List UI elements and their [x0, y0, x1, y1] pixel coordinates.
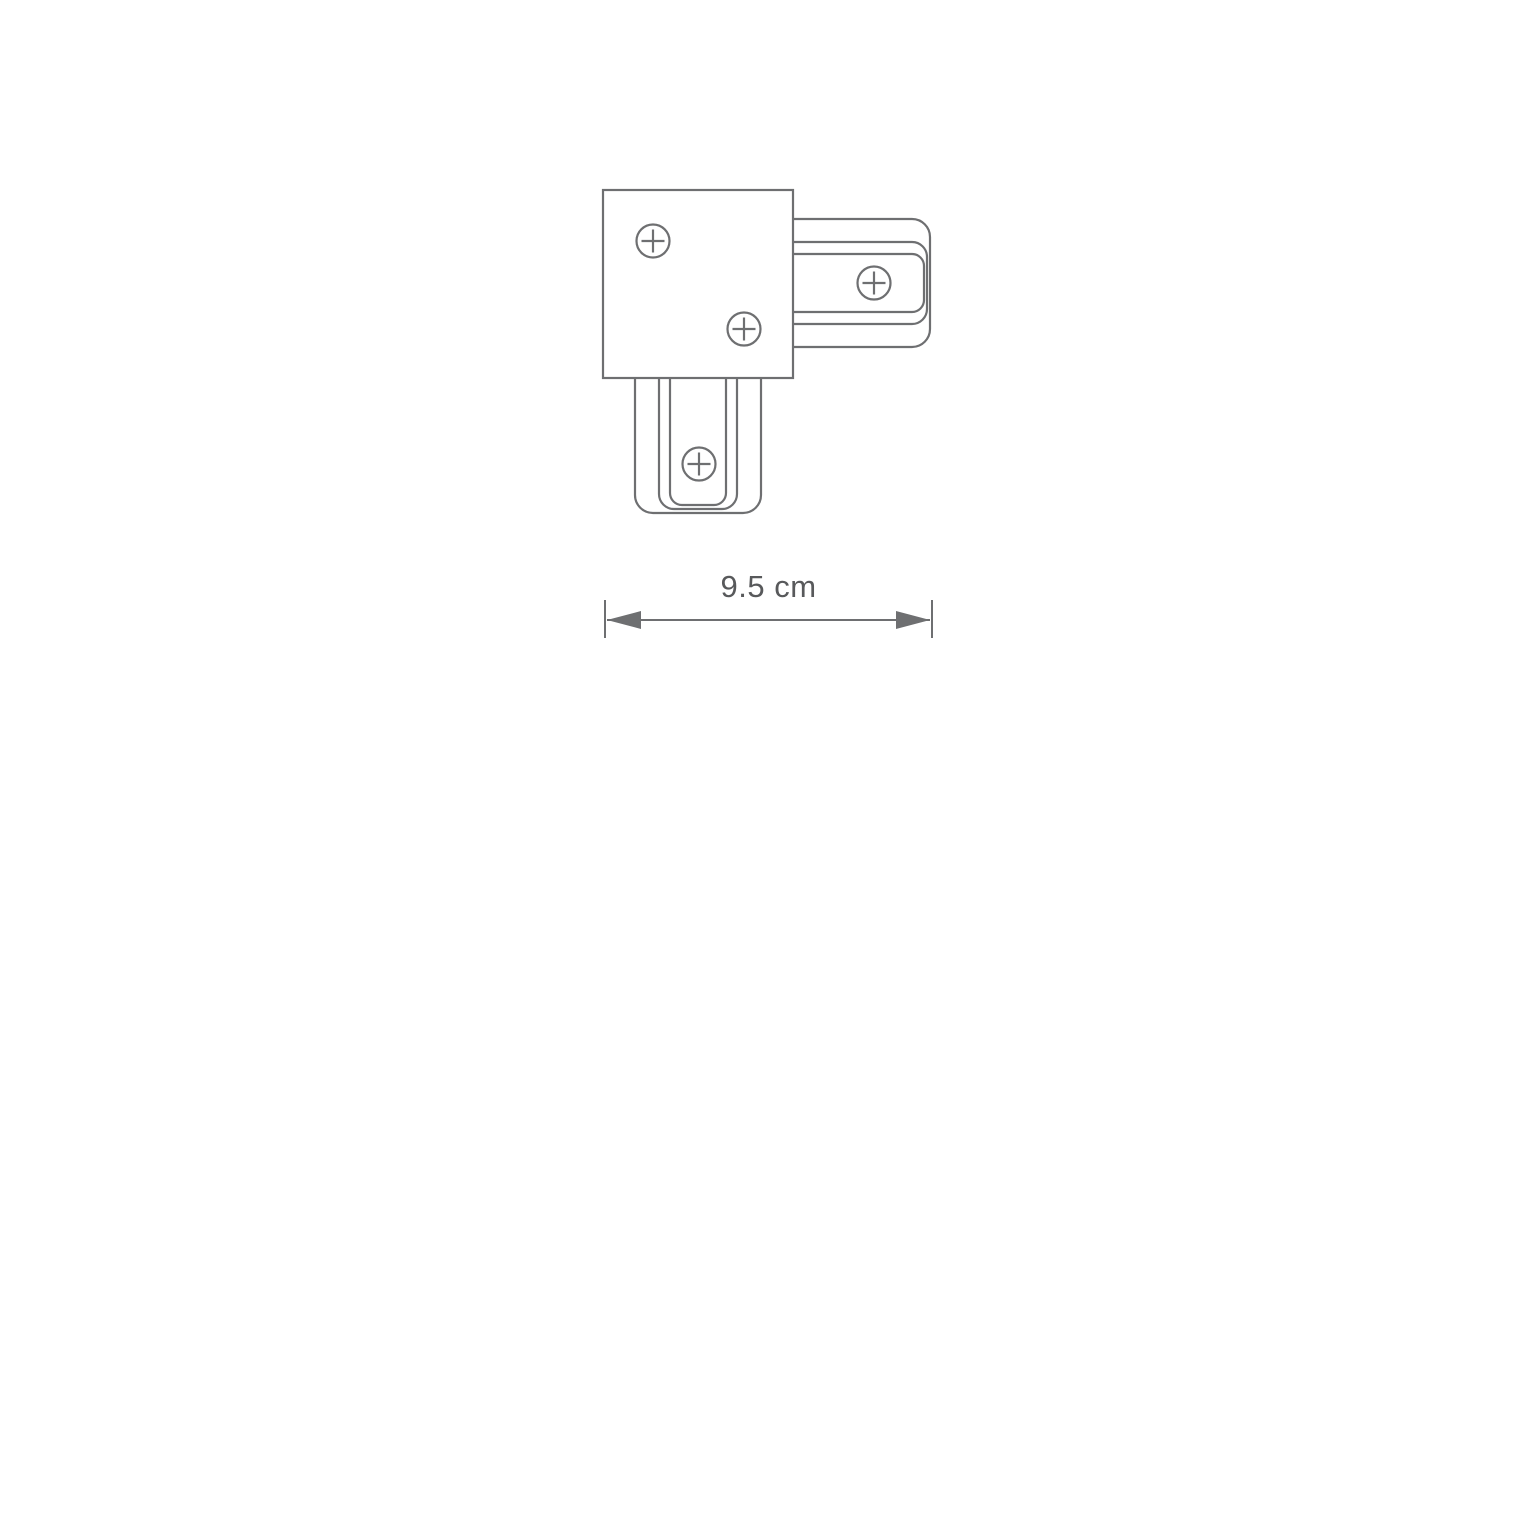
bottom-plug — [635, 360, 761, 513]
dimension-arrowhead-left — [607, 611, 641, 629]
connector-body — [603, 190, 793, 378]
drawing-canvas: 9.5 cm — [0, 0, 1540, 1540]
screw-icon — [728, 313, 761, 346]
screw-icon — [858, 267, 891, 300]
dimension-line — [605, 600, 932, 638]
dimension-label: 9.5 cm — [605, 569, 932, 605]
bottom-plug-inner-profile — [670, 360, 726, 505]
screw-icon — [683, 448, 716, 481]
dimension-arrowhead-right — [896, 611, 930, 629]
connector-technical-drawing — [0, 0, 1540, 1540]
screw-icon — [637, 225, 670, 258]
